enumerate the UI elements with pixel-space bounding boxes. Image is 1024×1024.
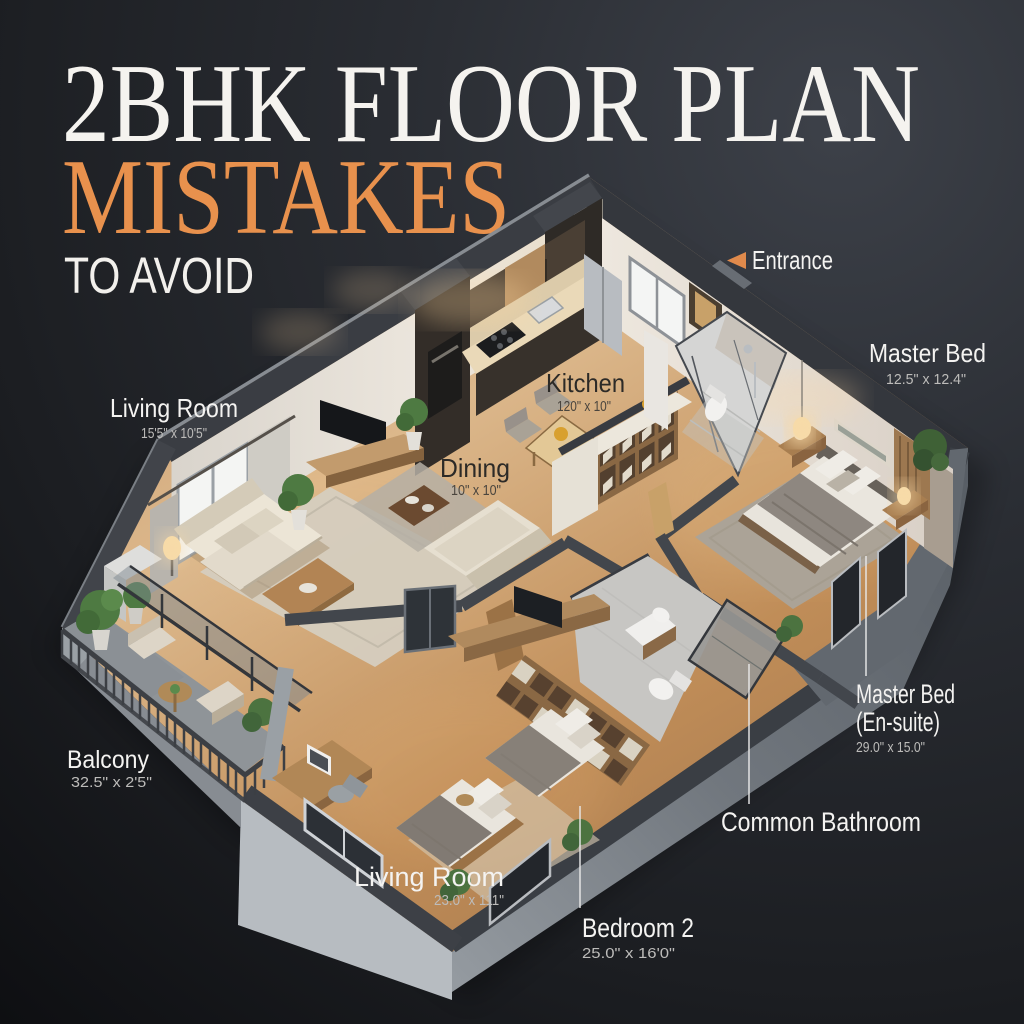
svg-text:Master Bed: Master Bed bbox=[856, 679, 955, 709]
svg-text:Living Room: Living Room bbox=[110, 393, 238, 423]
svg-text:Common Bathroom: Common Bathroom bbox=[721, 807, 921, 837]
svg-text:Master Bed: Master Bed bbox=[869, 338, 986, 368]
svg-text:23.0" x 111": 23.0" x 111" bbox=[434, 893, 504, 909]
svg-text:Bedroom 2: Bedroom 2 bbox=[582, 913, 694, 943]
svg-text:Dining: Dining bbox=[440, 453, 510, 483]
svg-text:Kitchen: Kitchen bbox=[546, 368, 625, 398]
svg-text:TO AVOID: TO AVOID bbox=[64, 247, 254, 304]
svg-text:MISTAKES: MISTAKES bbox=[62, 138, 510, 257]
svg-text:10" x 10": 10" x 10" bbox=[451, 483, 501, 499]
svg-text:Entrance: Entrance bbox=[752, 245, 833, 275]
svg-text:25.0" x 16'0": 25.0" x 16'0" bbox=[582, 946, 675, 962]
svg-text:32.5" x 2'5": 32.5" x 2'5" bbox=[71, 775, 152, 791]
svg-text:(En-suite): (En-suite) bbox=[856, 707, 940, 737]
svg-text:120" x 10": 120" x 10" bbox=[557, 399, 611, 415]
svg-text:12.5" x 12.4": 12.5" x 12.4" bbox=[886, 371, 966, 388]
svg-text:Living Room: Living Room bbox=[354, 862, 504, 892]
svg-text:Balcony: Balcony bbox=[67, 746, 149, 774]
svg-text:15'5" x 10'5": 15'5" x 10'5" bbox=[141, 426, 207, 442]
svg-text:29.0" x 15.0": 29.0" x 15.0" bbox=[856, 740, 925, 756]
